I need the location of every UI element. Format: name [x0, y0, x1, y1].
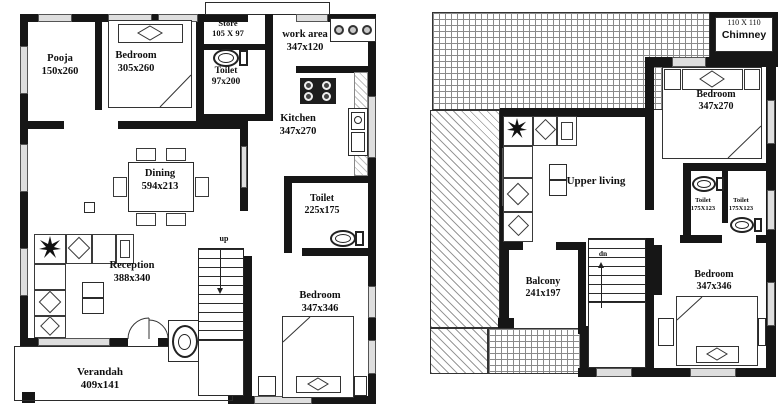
stair-landing [588, 302, 646, 368]
room-size: 97x200 [212, 77, 241, 88]
window [241, 146, 247, 188]
plant-icon [38, 236, 62, 258]
wall [196, 44, 273, 50]
wall [118, 121, 248, 129]
window [767, 190, 775, 230]
wall [196, 14, 204, 120]
room-label-upper-living: Upper living [567, 175, 626, 188]
column [84, 202, 95, 213]
room-name: Bedroom [696, 89, 735, 101]
room-label-toilet-left: Toilet 175X123 [691, 197, 715, 213]
stove-icon [300, 78, 336, 104]
chair [113, 177, 127, 197]
side-table [82, 298, 104, 314]
chimney-size-label: 110 X 110 [727, 18, 760, 28]
room-size: 347x120 [282, 42, 328, 55]
room-size: 241x197 [526, 288, 561, 300]
toilet-icon-inner [697, 180, 711, 188]
sofa-pillow [561, 122, 573, 140]
room-label-bedroom-bottom: Bedroom 347x346 [694, 269, 733, 293]
toilet-tank [355, 231, 364, 246]
room-size: 105 X 97 [212, 28, 244, 38]
room-name: Bedroom [115, 50, 156, 63]
toilet-tank [239, 50, 248, 66]
sofa-seat [503, 146, 533, 178]
room-name: Balcony [526, 276, 561, 288]
nightstand [258, 376, 276, 396]
nightstand [354, 376, 367, 396]
room-name: Upper living [567, 175, 626, 188]
chair [195, 177, 209, 197]
wall [498, 318, 514, 328]
room-size: 225x175 [305, 205, 340, 217]
room-label-balcony: Balcony 241x197 [526, 276, 561, 300]
stair-direction-text: up [220, 234, 229, 244]
wall [680, 235, 722, 243]
room-label-bedroom-bottom: Bedroom 347x346 [299, 290, 340, 315]
wall [505, 242, 523, 250]
side-table [549, 180, 567, 196]
wall [580, 326, 588, 376]
room-size: 175X123 [729, 205, 753, 213]
burner-icon [304, 81, 313, 90]
hob-icon [334, 25, 344, 35]
room-size: 347x270 [280, 126, 317, 139]
window [38, 14, 72, 22]
room-size: 150x260 [42, 66, 79, 79]
sofa-pillow [120, 240, 130, 258]
sink-drain [354, 116, 362, 124]
nightstand [658, 318, 674, 346]
room-label-bedroom-top: Bedroom 305x260 [115, 50, 156, 75]
door-arc-icon [126, 316, 170, 340]
toilet-icon-inner [335, 234, 351, 243]
chimney-label: Chimney [722, 29, 766, 42]
bed-icon [676, 296, 758, 366]
room-name: work area [282, 29, 328, 42]
room-name: Dining [142, 168, 179, 181]
window [38, 338, 110, 346]
sofa-seat [34, 264, 66, 290]
balcony-grid-hatch [488, 328, 586, 374]
room-name: Reception [110, 260, 155, 273]
staircase [588, 238, 646, 302]
side-table [549, 164, 567, 180]
room-size: 594x213 [142, 181, 179, 194]
bed-icon [282, 316, 354, 398]
wall [302, 248, 376, 256]
room-label-toilet-top: Toilet 97x200 [212, 66, 241, 89]
window [20, 248, 28, 296]
room-size: 305x260 [115, 63, 156, 76]
wall [683, 163, 768, 171]
room-label-toilet-right: Toilet 175X123 [729, 197, 753, 213]
room-name: Toilet [691, 197, 715, 205]
stair-direction-line [601, 268, 602, 308]
wall [196, 114, 273, 121]
wall [95, 14, 102, 110]
room-label-toilet-mid: Toilet 225x175 [305, 193, 340, 217]
down-arrowhead-icon [217, 288, 223, 294]
room-name: Toilet [729, 197, 753, 205]
window [296, 14, 328, 22]
bed-icon [662, 67, 762, 159]
wall [284, 183, 292, 253]
sink-basin [351, 132, 365, 152]
toilet-icon-inner [218, 53, 234, 63]
window [368, 286, 376, 318]
roof-diagonal-hatch [430, 328, 488, 374]
room-label-verandah: Verandah 409x141 [77, 366, 123, 392]
chair [166, 148, 186, 161]
roof-diagonal-hatch [430, 110, 500, 328]
window [596, 368, 632, 377]
room-size: 347x346 [694, 281, 733, 293]
floor-plan-sheet: Pooja 150x260 Bedroom 305x260 Store 105 … [0, 0, 784, 410]
stair-direction-line [220, 250, 221, 290]
window [672, 57, 706, 67]
window [767, 100, 775, 144]
nightstand [758, 318, 766, 346]
wall [265, 14, 273, 120]
side-table [82, 282, 104, 298]
wall [654, 245, 662, 295]
wall [683, 171, 691, 243]
stair-landing [198, 340, 244, 396]
room-name: Store [212, 18, 244, 28]
room-name: Toilet [305, 193, 340, 205]
wall [20, 121, 64, 129]
toilet-tank [716, 177, 724, 191]
room-name: Kitchen [280, 113, 317, 126]
burner-icon [322, 81, 331, 90]
window [20, 144, 28, 192]
room-label-pooja: Pooja 150x260 [42, 53, 79, 78]
room-label-reception: Reception 388x340 [110, 260, 155, 285]
room-size: 347x270 [696, 101, 735, 113]
room-size: 388x340 [110, 273, 155, 286]
room-size: 175X123 [691, 205, 715, 213]
room-label-dining: Dining 594x213 [142, 168, 179, 193]
chair [166, 213, 186, 226]
room-size: 409x141 [77, 379, 123, 392]
wall [645, 57, 654, 210]
wall [756, 235, 766, 243]
window [368, 340, 376, 374]
chimney-text: Chimney [722, 29, 766, 42]
wash-basin-inner [178, 334, 191, 350]
wall [244, 256, 252, 404]
window [767, 282, 775, 326]
stair-direction-text: dn [599, 249, 607, 258]
chimney-size-text: 110 X 110 [727, 18, 760, 28]
plant-icon [506, 118, 528, 138]
room-name: Toilet [212, 66, 241, 77]
stair-label-dn: dn [599, 249, 607, 258]
room-name: Pooja [42, 53, 79, 66]
room-name: Verandah [77, 366, 123, 379]
room-label-work-area: work area 347x120 [282, 29, 328, 54]
window [368, 96, 376, 158]
room-label-kitchen: Kitchen 347x270 [280, 113, 317, 138]
wall [645, 238, 654, 370]
window [20, 46, 28, 94]
chair [136, 148, 156, 161]
hob-icon [348, 25, 358, 35]
wall [500, 244, 509, 324]
window [690, 368, 736, 377]
toilet-icon-inner [735, 221, 749, 229]
room-size: 347x346 [299, 303, 340, 316]
stair-label-up: up [220, 234, 229, 244]
burner-icon [304, 92, 313, 101]
wall [284, 176, 376, 183]
toilet-tank [754, 218, 762, 232]
wall [578, 242, 586, 334]
staircase [198, 248, 244, 340]
burner-icon [322, 92, 331, 101]
room-name: Bedroom [694, 269, 733, 281]
room-name: Bedroom [299, 290, 340, 303]
hob-icon [362, 25, 372, 35]
room-label-store: Store 105 X 97 [212, 18, 244, 38]
chair [136, 213, 156, 226]
room-label-bedroom-top: Bedroom 347x270 [696, 89, 735, 113]
